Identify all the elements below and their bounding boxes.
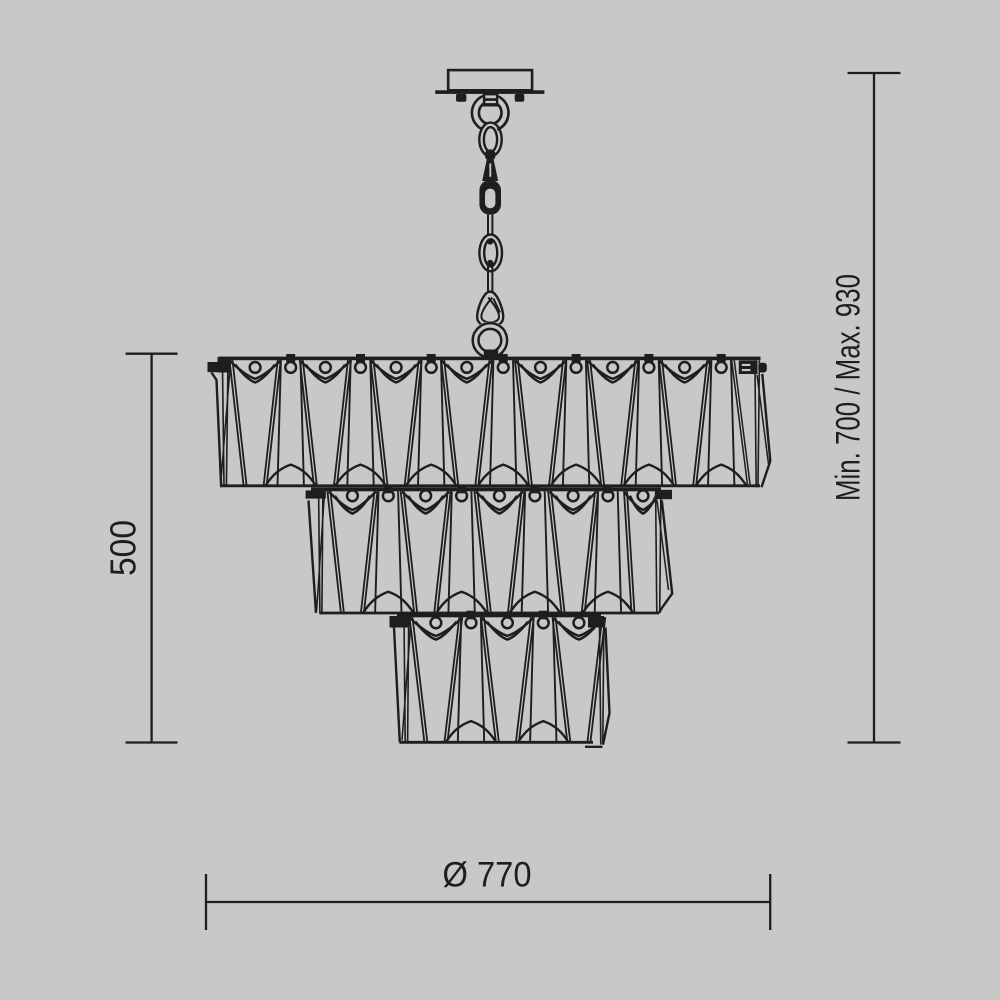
svg-text:Ø 770: Ø 770 bbox=[443, 855, 532, 895]
svg-text:Min. 700 / Max. 930: Min. 700 / Max. 930 bbox=[830, 274, 868, 501]
svg-text:500: 500 bbox=[103, 520, 144, 576]
